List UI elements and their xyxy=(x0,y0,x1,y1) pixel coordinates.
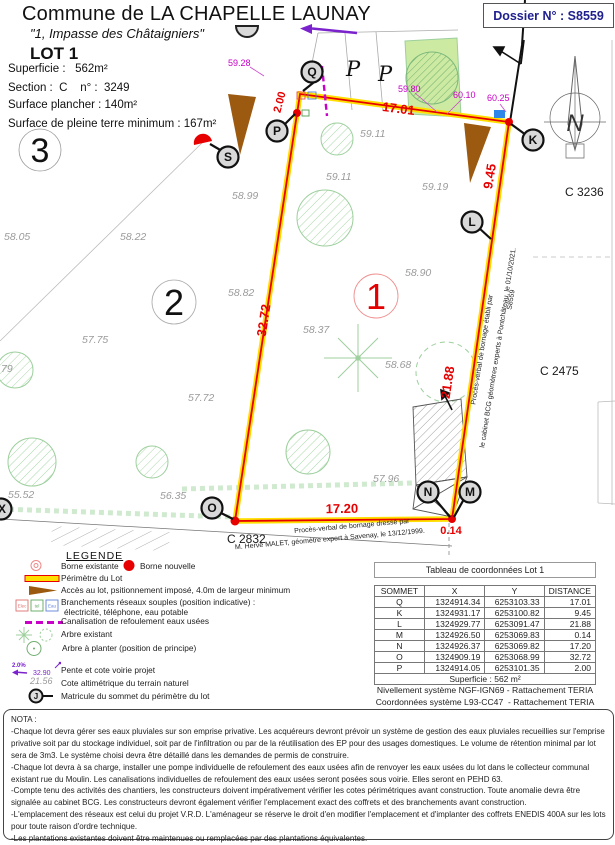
legend-borne-nouvelle: Borne nouvelle xyxy=(140,561,195,571)
svg-text:tel: tel xyxy=(35,604,40,609)
vertex-s: S xyxy=(224,150,232,164)
dim-no: 17.20 xyxy=(326,501,359,517)
legend-pente: Pente et cote voirie projet xyxy=(61,665,155,675)
access-arrow-left xyxy=(228,94,256,155)
legend-borne-existante: Borne existante xyxy=(61,561,119,571)
svg-text:58.05: 58.05 xyxy=(4,231,30,243)
legend-matricule: Matricule du sommet du périmètre du lot xyxy=(61,691,210,701)
north-letter: N xyxy=(566,110,584,137)
blue-utility-box xyxy=(494,110,505,118)
svg-text:58.37: 58.37 xyxy=(303,324,330,336)
svg-text:56.35: 56.35 xyxy=(160,490,186,502)
existing-trees xyxy=(0,123,476,486)
proj-level-2: 59.80 xyxy=(398,84,421,94)
address-subtitle: "1, Impasse des Châtaigniers" xyxy=(30,26,204,41)
table-row: K1324931.176253100.829.45 xyxy=(375,608,596,619)
vertex-l: L xyxy=(468,215,475,229)
parking-letter-2: P xyxy=(377,62,393,86)
col-x: X xyxy=(424,586,484,597)
svg-text:59.11: 59.11 xyxy=(326,171,352,183)
parcel-c2475: C 2475 xyxy=(540,364,579,378)
table-row: Q1324914.346253103.3317.01 xyxy=(375,597,596,608)
borne-existante-icon xyxy=(28,559,56,572)
nota-item: -Les plantations existantes doivent être… xyxy=(11,833,606,845)
svg-text:58.68: 58.68 xyxy=(385,359,411,371)
page-title: Commune de LA CHAPELLE LAUNAY xyxy=(22,3,371,26)
nota-item: -Chaque lot devra à sa charge, installer… xyxy=(11,762,606,786)
svg-text:79: 79 xyxy=(1,363,13,375)
north-compass: N xyxy=(544,56,606,158)
vertex-m: M xyxy=(465,485,475,499)
proj-level-1: 59.28 xyxy=(228,58,251,68)
lot2-number: 2 xyxy=(164,282,184,323)
nota-item: -L'emplacement des réseaux est celui du … xyxy=(11,809,606,833)
info-section: Section : C n° : 3249 xyxy=(8,82,130,94)
svg-text:58.22: 58.22 xyxy=(120,231,146,243)
nota-item: -Compte tenu des activités des chantiers… xyxy=(11,785,606,809)
borne-s-marker xyxy=(194,134,212,145)
col-y: Y xyxy=(485,586,544,597)
table-row: O1324909.196253068.9932.72 xyxy=(375,652,596,663)
svg-text:57.75: 57.75 xyxy=(82,334,108,346)
vertex-x: X xyxy=(0,502,6,516)
table-superficie: Superficie : 562 m² xyxy=(375,674,596,685)
proj-level-3: 60.10 xyxy=(453,90,476,100)
svg-text:57.72: 57.72 xyxy=(188,392,214,404)
svg-text:2.0%: 2.0% xyxy=(12,663,26,669)
dim-qk: 17.01 xyxy=(381,99,415,118)
svg-text:58.90: 58.90 xyxy=(405,267,431,279)
coordinates-table: SOMMET X Y DISTANCE Q1324914.346253103.3… xyxy=(374,585,596,685)
vertex-k: K xyxy=(529,133,538,147)
ref-coordonnees: Coordonnées système L93-CC47 - Rattachem… xyxy=(365,697,605,707)
arbre-planter-icon xyxy=(25,640,43,657)
vertex-o: O xyxy=(207,501,216,515)
coordinates-table-title: Tableau de coordonnées Lot 1 xyxy=(374,562,596,578)
info-pleine-terre: Surface de pleine terre minimum : 167m² xyxy=(8,118,216,130)
perimetre-icon xyxy=(24,574,60,583)
svg-text:55.52: 55.52 xyxy=(8,489,34,501)
nota-box: NOTA : -Chaque lot devra gérer ses eaux … xyxy=(3,709,614,840)
coordinates-panel: Tableau de coordonnées Lot 1 SOMMET X Y … xyxy=(374,562,596,685)
nota-item: -Chaque lot devra gérer ses eaux pluvial… xyxy=(11,726,606,762)
table-row: M1324926.506253069.830.14 xyxy=(375,630,596,641)
legend-cote-alti: Cote altimétrique du terrain naturel xyxy=(61,678,189,688)
parking-letter-1: P xyxy=(345,57,361,81)
vertex-p: P xyxy=(273,124,281,138)
table-footer-row: Superficie : 562 m² xyxy=(375,674,596,685)
dim-pq: 2.00 xyxy=(272,90,289,114)
lot3-number: 3 xyxy=(31,132,50,170)
vertex-n: N xyxy=(424,485,433,499)
vertex-q: Q xyxy=(307,65,316,79)
legend-arbre-existant: Arbre existant xyxy=(61,629,112,639)
svg-text:58.99: 58.99 xyxy=(232,190,258,202)
branchements-icon: Elec tel Eau xyxy=(15,599,59,612)
legend-perimetre: Périmètre du Lot xyxy=(61,573,122,583)
table-header-row: SOMMET X Y DISTANCE xyxy=(375,586,596,597)
legend-canalisation: Canalisation de refoulement eaux usées xyxy=(61,616,209,626)
info-surface-plancher: Surface plancher : 140m² xyxy=(8,99,137,111)
dossier-number-box: Dossier N° : S8559 xyxy=(483,3,614,28)
lot1-number: 1 xyxy=(366,276,386,317)
borne-nouvelle-icon xyxy=(122,559,136,572)
proj-level-4: 60.25 xyxy=(487,93,510,103)
nota-title: NOTA : xyxy=(11,714,606,726)
acces-icon xyxy=(27,584,59,597)
tree-cross-symbol xyxy=(324,324,392,392)
svg-text:59.11: 59.11 xyxy=(360,128,386,140)
col-distance: DISTANCE xyxy=(544,586,595,597)
legend-branchements-1: Branchements réseaux souples (position i… xyxy=(61,597,255,607)
dim-op: 32.72 xyxy=(254,303,274,337)
svg-text:J: J xyxy=(34,692,38,701)
matricule-icon: J xyxy=(27,688,57,704)
legend-acces: Accès au lot, psitionnement imposé, 4.0m… xyxy=(61,585,290,595)
dim-kl: 9.45 xyxy=(480,163,499,190)
road-hatch xyxy=(51,526,170,551)
partial-vertex-circle xyxy=(236,26,258,37)
table-row: L1324929.776253091.4721.88 xyxy=(375,619,596,630)
info-superficie: Superficie : 562m² xyxy=(8,63,108,75)
col-sommet: SOMMET xyxy=(375,586,425,597)
dim-mn: 0.14 xyxy=(440,525,462,537)
cote-sample: 21.56 xyxy=(30,676,53,686)
dim-lm: 21.88 xyxy=(438,365,458,399)
table-row: P1324914.056253101.352.00 xyxy=(375,663,596,674)
svg-text:59.19: 59.19 xyxy=(422,181,448,193)
svg-text:Elec: Elec xyxy=(18,604,28,609)
table-row: N1324926.376253069.8217.20 xyxy=(375,641,596,652)
parcel-c3236: C 3236 xyxy=(565,185,604,199)
ref-nivellement: Nivellement système NGF-IGN69 - Rattache… xyxy=(365,685,605,695)
tree-in-green-strip xyxy=(406,52,458,104)
lot-title: LOT 1 xyxy=(30,44,78,64)
svg-text:58.82: 58.82 xyxy=(228,287,254,299)
dossier-number: Dossier N° : S8559 xyxy=(493,9,604,23)
legend-arbre-planter: Arbre à planter (position de principe) xyxy=(62,643,196,653)
svg-text:57.96: 57.96 xyxy=(373,473,399,485)
svg-text:Eau: Eau xyxy=(48,604,57,609)
